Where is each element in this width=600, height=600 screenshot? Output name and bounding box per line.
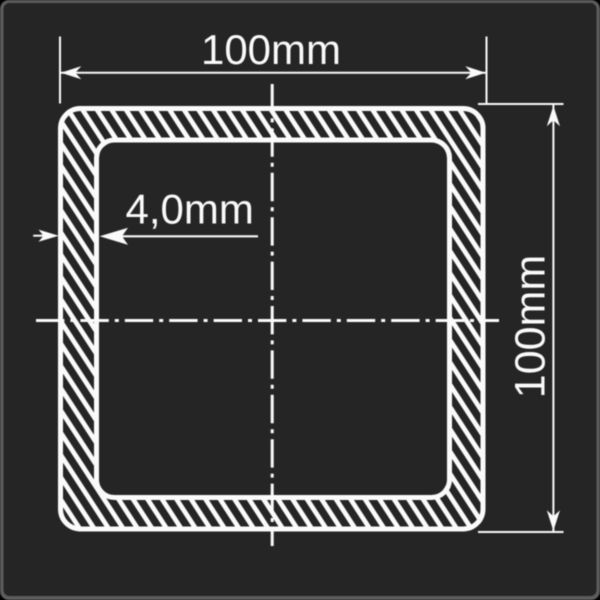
svg-text:4,0mm: 4,0mm xyxy=(126,186,254,233)
svg-text:100mm: 100mm xyxy=(201,26,341,73)
svg-text:100mm: 100mm xyxy=(507,255,555,398)
